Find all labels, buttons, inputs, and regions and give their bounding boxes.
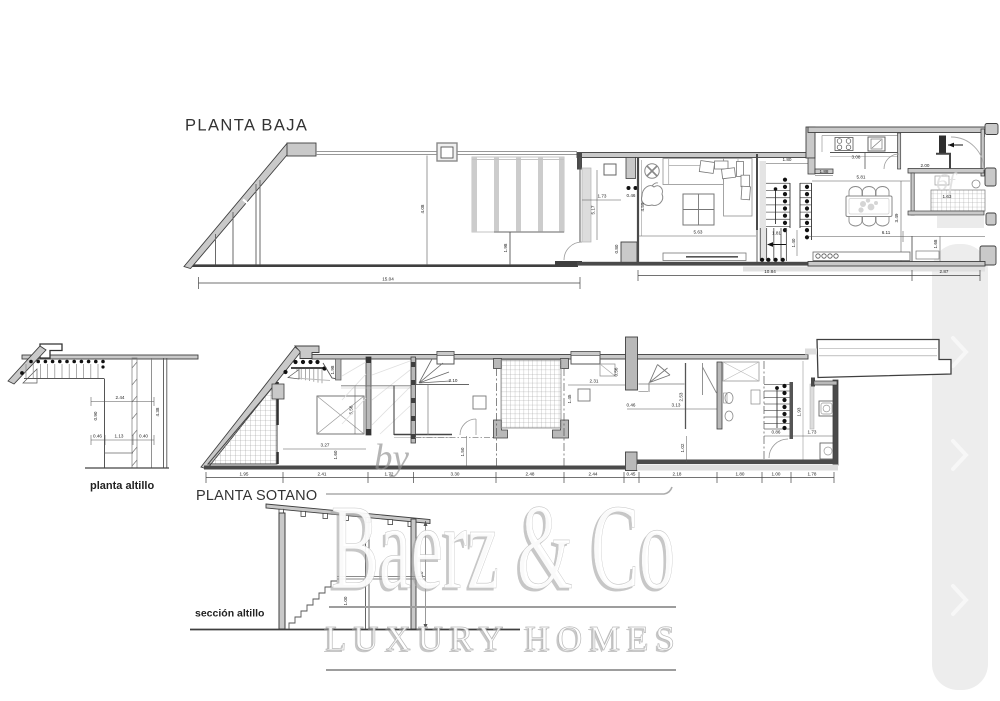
svg-text:1.98: 1.98 (503, 243, 508, 252)
svg-text:1.98: 1.98 (330, 365, 335, 374)
svg-text:5.63: 5.63 (694, 230, 703, 235)
svg-text:2.53: 2.53 (679, 392, 684, 401)
svg-text:2.44: 2.44 (116, 395, 125, 400)
svg-text:2.41: 2.41 (318, 472, 327, 477)
svg-text:10.84: 10.84 (764, 269, 776, 274)
svg-text:1.00: 1.00 (772, 472, 781, 477)
svg-text:1.45: 1.45 (567, 394, 572, 403)
svg-text:2.48: 2.48 (526, 472, 535, 477)
svg-text:1.68: 1.68 (933, 239, 938, 248)
svg-text:3.10: 3.10 (449, 378, 458, 383)
svg-text:5.56: 5.56 (349, 405, 354, 414)
svg-text:1.50: 1.50 (460, 447, 465, 456)
svg-text:4.59: 4.59 (640, 202, 645, 211)
svg-text:2.44: 2.44 (589, 472, 598, 477)
svg-text:3.13: 3.13 (672, 403, 681, 408)
svg-text:PLANTA SOTANO: PLANTA SOTANO (196, 488, 317, 504)
svg-text:5.81: 5.81 (857, 175, 866, 180)
svg-text:Baerz & Co: Baerz & Co (331, 480, 675, 615)
svg-text:1.02: 1.02 (680, 443, 685, 452)
svg-text:0.46: 0.46 (93, 434, 102, 439)
svg-text:3.27: 3.27 (321, 443, 330, 448)
svg-text:PLANTA BAJA: PLANTA BAJA (185, 117, 308, 135)
svg-text:1.73: 1.73 (598, 194, 607, 199)
svg-text:0.46: 0.46 (627, 403, 636, 408)
svg-text:1.88: 1.88 (820, 169, 829, 174)
svg-text:3.08: 3.08 (852, 155, 861, 160)
svg-text:0.56: 0.56 (614, 367, 619, 376)
svg-text:0.46: 0.46 (627, 193, 636, 198)
svg-text:4.38: 4.38 (155, 407, 160, 416)
svg-text:1.60: 1.60 (333, 450, 338, 459)
svg-text:0.86: 0.86 (772, 430, 781, 435)
svg-text:2.18: 2.18 (673, 472, 682, 477)
svg-text:3.30: 3.30 (451, 472, 460, 477)
svg-text:0.40: 0.40 (139, 434, 148, 439)
svg-text:planta altillo: planta altillo (90, 480, 154, 492)
svg-text:1.40: 1.40 (791, 238, 796, 247)
svg-text:15.04: 15.04 (382, 277, 394, 282)
svg-text:0.90: 0.90 (93, 411, 98, 420)
svg-text:1.73: 1.73 (808, 430, 817, 435)
svg-text:5.17: 5.17 (591, 205, 596, 214)
svg-text:2.00: 2.00 (921, 163, 930, 168)
svg-text:3.49: 3.49 (894, 213, 899, 222)
svg-text:1.78: 1.78 (808, 472, 817, 477)
svg-text:1.81: 1.81 (772, 231, 781, 236)
svg-text:6.11: 6.11 (882, 230, 891, 235)
svg-text:2.87: 2.87 (940, 269, 949, 274)
svg-text:1.13: 1.13 (115, 434, 124, 439)
svg-text:sección altillo: sección altillo (195, 608, 264, 620)
svg-text:2.31: 2.31 (590, 379, 599, 384)
svg-text:1.80: 1.80 (783, 157, 792, 162)
svg-text:1.93: 1.93 (797, 407, 802, 416)
svg-text:0.80: 0.80 (614, 244, 619, 253)
svg-text:0.45: 0.45 (627, 472, 636, 477)
svg-text:by: by (374, 438, 410, 479)
svg-text:4.08: 4.08 (420, 204, 425, 213)
svg-text:1.80: 1.80 (736, 472, 745, 477)
svg-text:1.95: 1.95 (240, 472, 249, 477)
